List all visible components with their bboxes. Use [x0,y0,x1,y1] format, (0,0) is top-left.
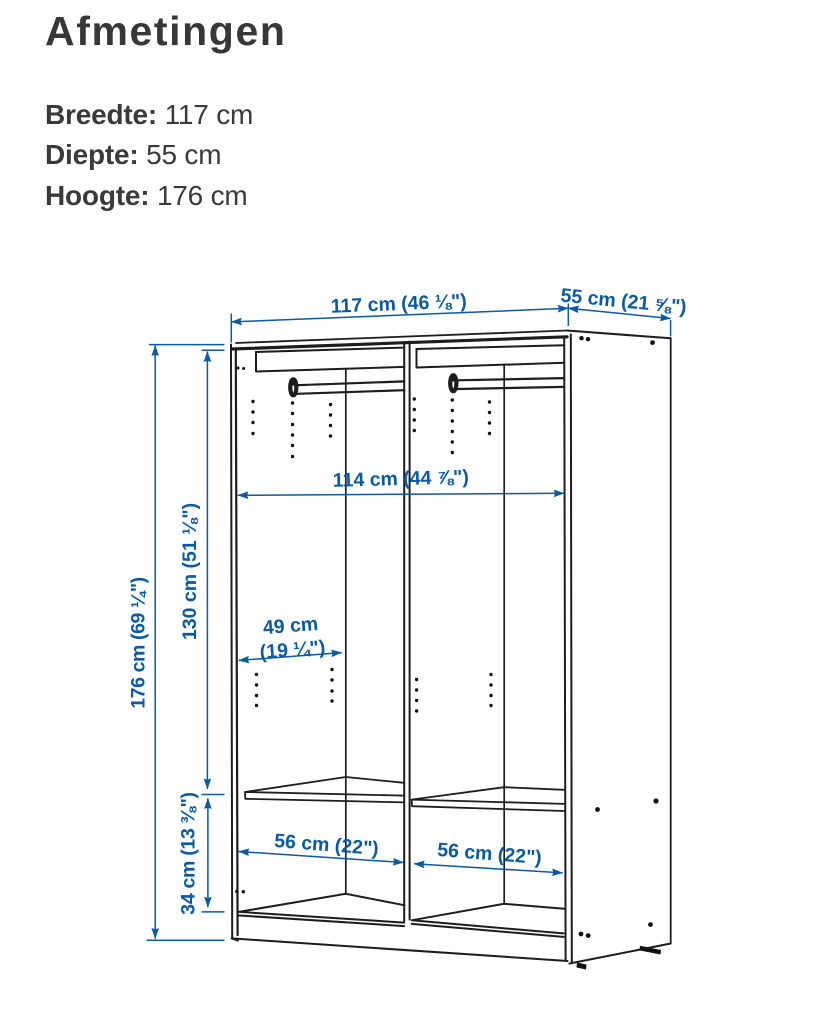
svg-text:130 cm (51 ⅛"): 130 cm (51 ⅛") [179,503,201,640]
svg-text:49 cm: 49 cm [262,613,319,639]
svg-text:34 cm (13 ⅜"): 34 cm (13 ⅜") [178,792,200,914]
svg-text:(19 ¼"): (19 ¼") [259,636,326,663]
svg-text:56 cm (22"): 56 cm (22") [436,839,542,869]
svg-text:114 cm (44 ⅞"): 114 cm (44 ⅞") [333,466,470,492]
svg-text:176 cm (69 ¼"): 176 cm (69 ¼") [128,577,150,709]
